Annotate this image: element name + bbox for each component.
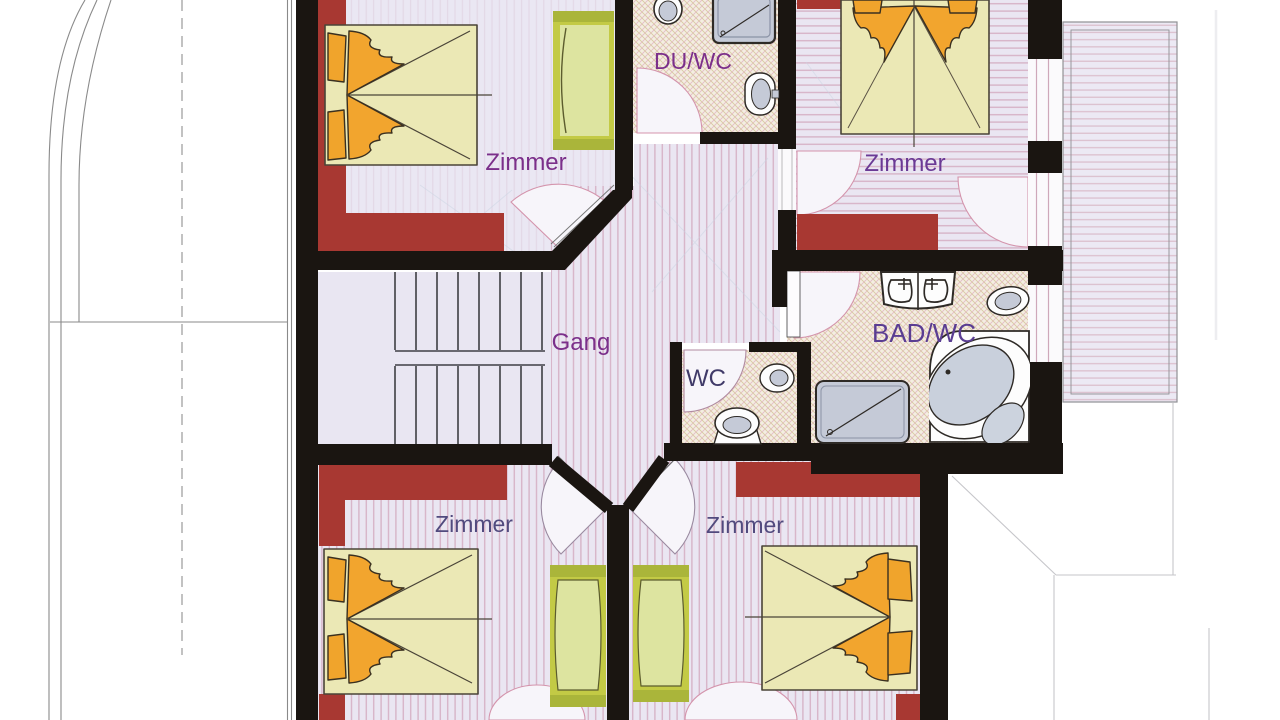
svg-text:Zimmer: Zimmer	[864, 150, 945, 177]
svg-text:Zimmer: Zimmer	[706, 512, 784, 538]
svg-text:BAD/WC: BAD/WC	[872, 318, 976, 348]
svg-text:DU/WC: DU/WC	[654, 48, 732, 74]
svg-text:WC: WC	[686, 365, 726, 392]
svg-text:Zimmer: Zimmer	[435, 511, 513, 537]
svg-text:Zimmer: Zimmer	[485, 149, 566, 176]
svg-text:Gang: Gang	[552, 329, 611, 356]
